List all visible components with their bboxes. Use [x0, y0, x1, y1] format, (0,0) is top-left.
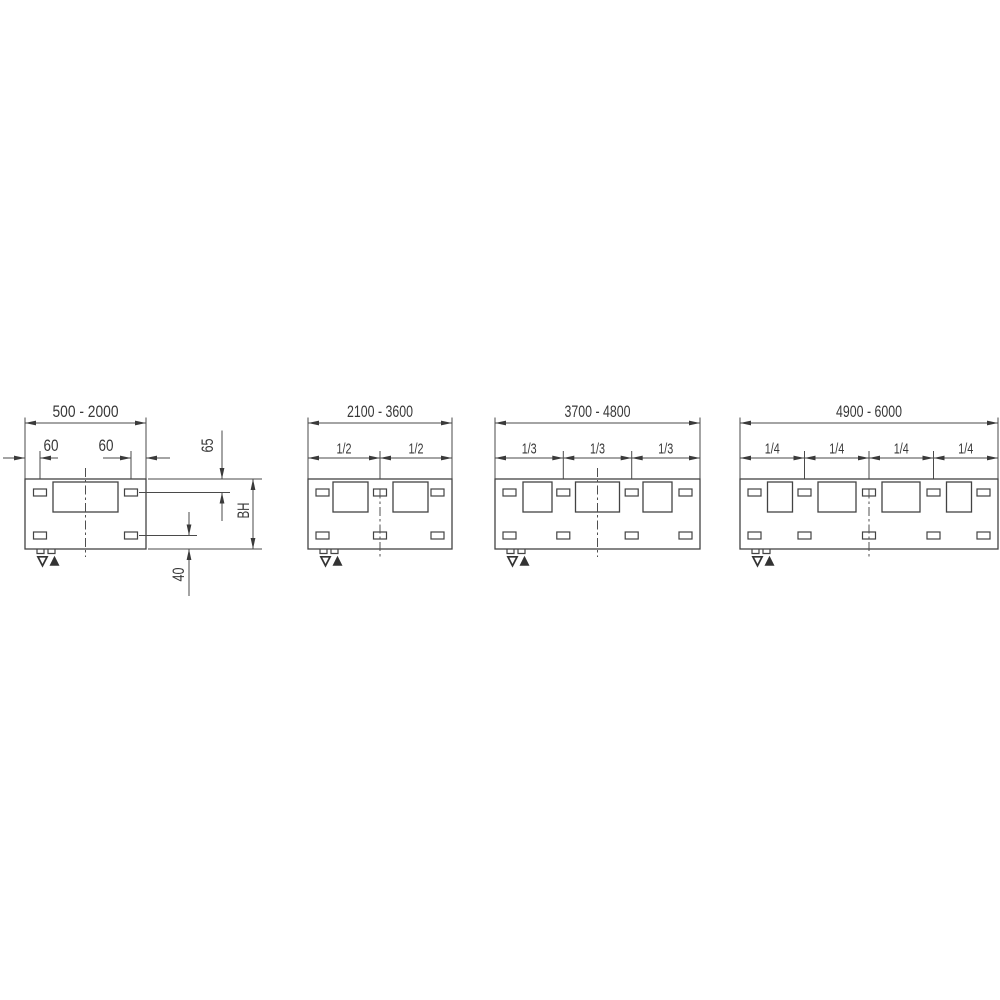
- mounting-bracket-icon: [431, 532, 444, 539]
- mounting-bracket-icon: [125, 532, 138, 539]
- arrowhead: [689, 456, 700, 461]
- length-range-label: 500 - 2000: [53, 402, 119, 421]
- mounting-bracket-icon: [927, 532, 940, 539]
- arrowhead: [689, 421, 700, 426]
- arrowhead: [923, 456, 934, 461]
- arrowhead: [794, 456, 805, 461]
- mounting-bracket-icon: [977, 532, 990, 539]
- mounting-bracket-icon: [927, 489, 940, 496]
- dimension-drawing: 500 - 2000 60 60: [0, 0, 1000, 1000]
- length-range-label: 3700 - 4800: [565, 402, 631, 421]
- triangle-up-filled-icon: [50, 556, 60, 566]
- side-dimensions: 65 BH 40: [139, 431, 262, 597]
- arrowhead: [220, 468, 225, 479]
- top-offset-label: 65: [198, 439, 217, 453]
- mounting-bracket-icon: [748, 489, 761, 496]
- segment-label: 1/2: [337, 442, 352, 458]
- arrowhead: [25, 421, 36, 426]
- mounting-bracket-icon: [316, 532, 329, 539]
- mounting-bracket-icon: [748, 532, 761, 539]
- mounting-bracket-icon: [34, 489, 47, 496]
- arrowhead: [621, 456, 632, 461]
- triangle-down-outline-icon: [321, 557, 330, 566]
- arrowhead: [441, 456, 452, 461]
- arrowhead: [563, 456, 574, 461]
- mounting-bracket-icon: [431, 489, 444, 496]
- mounting-bracket-icon: [503, 532, 516, 539]
- diagram-panel-type-2: 2100 - 3600 1/2 1/2: [308, 402, 452, 566]
- segment-label: 1/4: [765, 442, 780, 458]
- arrowhead: [987, 456, 998, 461]
- connection-tab-icon: [331, 549, 338, 554]
- triangle-down-outline-icon: [753, 557, 762, 566]
- arrowhead: [380, 456, 391, 461]
- diagram-panel-type-3: 3700 - 4800 1/3 1/3 1/3: [495, 402, 700, 566]
- length-range-label: 4900 - 6000: [836, 402, 902, 421]
- diagram-panel-type-1: 500 - 2000 60 60: [3, 402, 262, 596]
- arrowhead: [146, 456, 157, 461]
- mounting-bracket-icon: [977, 489, 990, 496]
- mounting-bracket-icon: [557, 489, 570, 496]
- length-range-label: 2100 - 3600: [347, 402, 413, 421]
- arrowhead: [308, 456, 319, 461]
- arrowhead: [187, 525, 192, 536]
- connection-tab-icon: [37, 549, 44, 554]
- connection-tab-icon: [518, 549, 525, 554]
- segment-label: 1/3: [522, 442, 537, 458]
- arrowhead: [805, 456, 816, 461]
- arrowhead: [14, 456, 25, 461]
- arrowhead: [251, 479, 256, 490]
- bottom-offset-label: 40: [169, 568, 188, 582]
- arrowhead: [441, 421, 452, 426]
- segment-label: 1/4: [894, 442, 909, 458]
- triangle-up-filled-icon: [520, 556, 530, 566]
- mounting-bracket-icon: [557, 532, 570, 539]
- diagram-panel-type-4: 4900 - 6000 1/4 1/4 1/4 1/4: [740, 402, 998, 566]
- connection-tab-icon: [48, 549, 55, 554]
- triangle-down-outline-icon: [38, 557, 47, 566]
- build-height-label: BH: [234, 503, 253, 519]
- mounting-bracket-icon: [679, 532, 692, 539]
- panel-body: [740, 479, 998, 566]
- arrowhead: [495, 421, 506, 426]
- mounting-bracket-icon: [125, 489, 138, 496]
- technical-drawing-canvas: 500 - 2000 60 60: [0, 0, 1000, 1000]
- arrowhead: [552, 456, 563, 461]
- arrowhead: [934, 456, 945, 461]
- segment-label: 1/2: [409, 442, 424, 458]
- mounting-bracket-icon: [503, 489, 516, 496]
- mounting-bracket-icon: [625, 532, 638, 539]
- arrowhead: [220, 493, 225, 504]
- connection-tab-icon: [507, 549, 514, 554]
- arrowhead: [740, 456, 751, 461]
- mounting-bracket-icon: [625, 489, 638, 496]
- triangle-down-outline-icon: [508, 557, 517, 566]
- mounting-bracket-icon: [798, 532, 811, 539]
- segment-label: 1/3: [590, 442, 605, 458]
- mounting-bracket-icon: [798, 489, 811, 496]
- panel-body: [308, 479, 452, 566]
- arrowhead: [987, 421, 998, 426]
- offset-label-right: 60: [99, 436, 114, 455]
- arrowhead: [495, 456, 506, 461]
- offset-label-left: 60: [44, 436, 59, 455]
- mounting-bracket-icon: [316, 489, 329, 496]
- triangle-up-filled-icon: [765, 556, 775, 566]
- connection-tab-icon: [763, 549, 770, 554]
- panel-body: [495, 468, 700, 566]
- connection-tab-icon: [752, 549, 759, 554]
- arrowhead: [858, 456, 869, 461]
- triangle-up-filled-icon: [333, 556, 343, 566]
- segment-label: 1/4: [958, 442, 973, 458]
- arrowhead: [251, 538, 256, 549]
- segment-label: 1/4: [829, 442, 844, 458]
- arrowhead: [740, 421, 751, 426]
- arrowhead: [869, 456, 880, 461]
- arrowhead: [308, 421, 319, 426]
- arrowhead: [369, 456, 380, 461]
- segment-label: 1/3: [658, 442, 673, 458]
- arrowhead: [120, 456, 131, 461]
- mounting-bracket-icon: [34, 532, 47, 539]
- arrowhead: [135, 421, 146, 426]
- panel-body: [25, 468, 146, 566]
- connection-tab-icon: [320, 549, 327, 554]
- mounting-bracket-icon: [679, 489, 692, 496]
- arrowhead: [632, 456, 643, 461]
- arrowhead: [40, 456, 51, 461]
- arrowhead: [187, 549, 192, 560]
- overall-length-dimension: 3700 - 4800: [495, 402, 700, 479]
